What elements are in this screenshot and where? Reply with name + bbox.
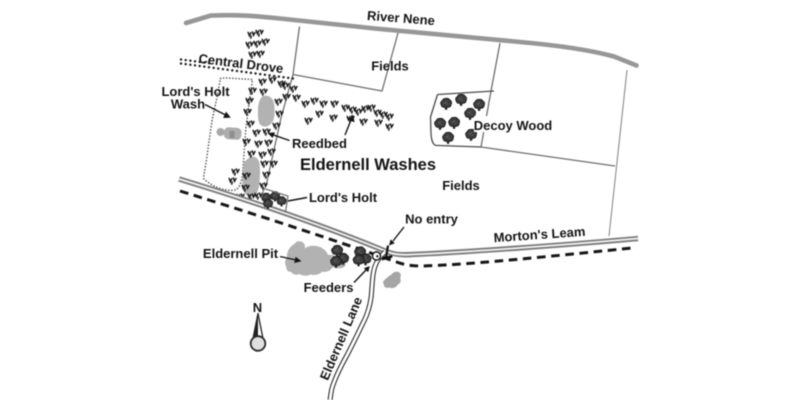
- svg-text:No entry: No entry: [405, 212, 459, 227]
- svg-text:Feeders: Feeders: [304, 280, 354, 295]
- svg-text:Eldernell Pit: Eldernell Pit: [203, 246, 279, 261]
- svg-text:N: N: [253, 300, 262, 315]
- svg-text:Reedbed: Reedbed: [292, 136, 347, 151]
- svg-text:Decoy Wood: Decoy Wood: [474, 118, 553, 133]
- svg-text:Wash: Wash: [171, 97, 205, 112]
- svg-text:Eldernell Washes: Eldernell Washes: [300, 156, 436, 174]
- svg-text:Lord's Holt: Lord's Holt: [309, 190, 378, 205]
- svg-text:Fields: Fields: [371, 59, 409, 74]
- svg-text:Fields: Fields: [442, 178, 480, 193]
